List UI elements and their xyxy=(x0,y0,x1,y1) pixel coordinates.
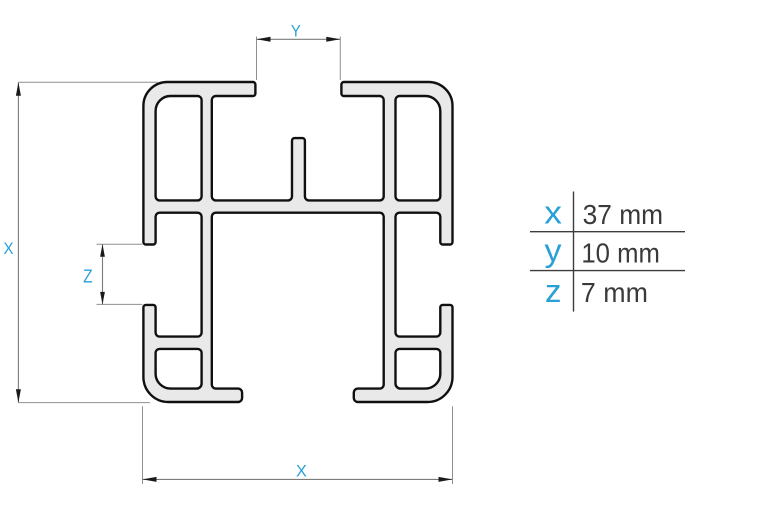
svg-text:x: x xyxy=(544,194,562,230)
svg-text:37 mm: 37 mm xyxy=(583,199,664,230)
svg-text:X: X xyxy=(4,239,14,258)
svg-text:7 mm: 7 mm xyxy=(581,277,648,308)
svg-text:Y: Y xyxy=(291,21,301,40)
svg-text:Z: Z xyxy=(83,265,93,286)
svg-text:y: y xyxy=(545,233,562,269)
svg-text:X: X xyxy=(296,462,307,480)
svg-text:10 mm: 10 mm xyxy=(581,238,660,269)
svg-text:z: z xyxy=(545,273,562,309)
